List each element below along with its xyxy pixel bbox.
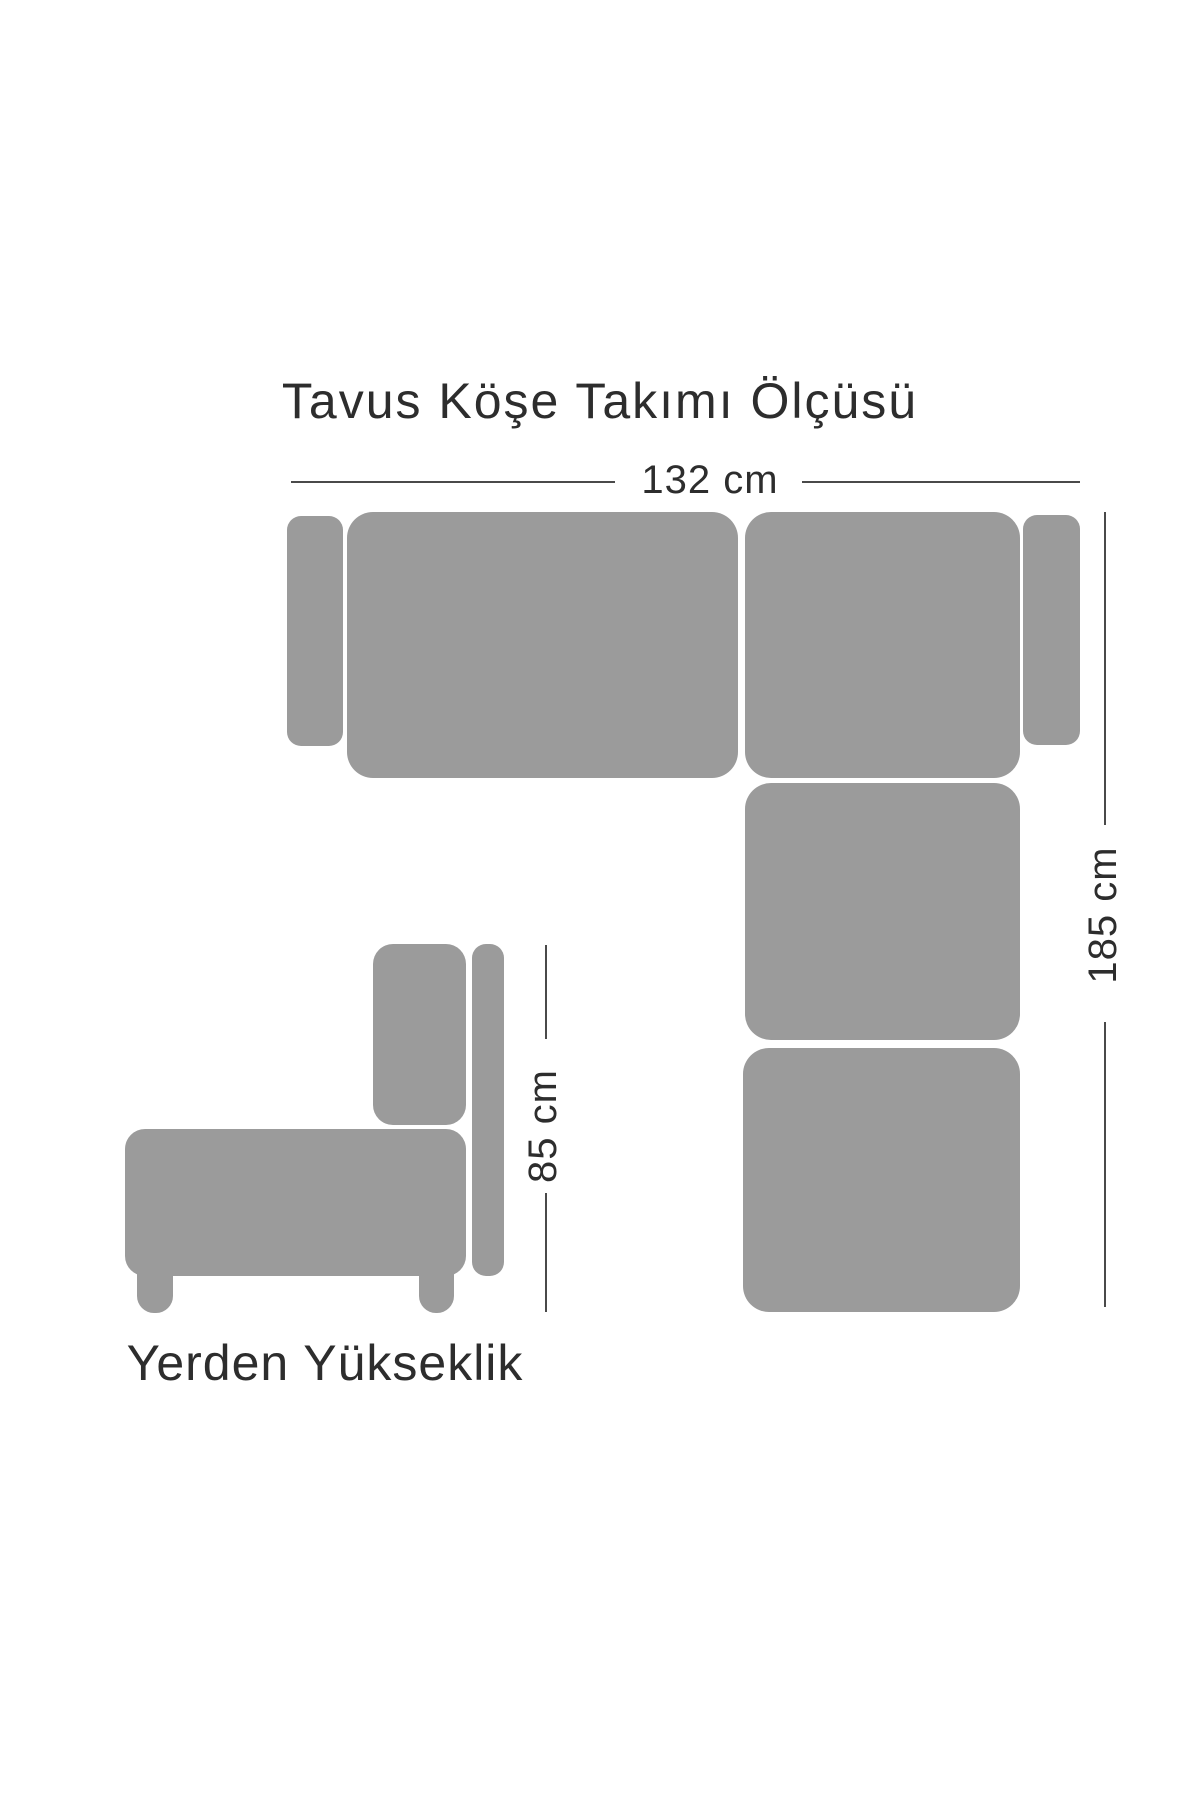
width-dimension-label: 132 cm <box>630 458 790 503</box>
height-dimension-line-top <box>545 945 547 1039</box>
plan-seat-corner <box>745 512 1020 778</box>
plan-armrest-right <box>1023 515 1080 745</box>
height-dimension-label: 85 cm <box>523 1061 563 1191</box>
page-title: Tavus Köşe Takımı Ölçüsü <box>0 372 1200 430</box>
depth-dimension-label: 185 cm <box>1083 830 1123 1000</box>
dimension-diagram: Tavus Köşe Takımı Ölçüsü 132 cm 185 cm 8… <box>0 0 1200 1800</box>
width-dimension-line-left <box>291 481 615 483</box>
depth-dimension-line-top <box>1104 512 1106 825</box>
plan-armrest-left <box>287 516 343 746</box>
plan-seat-middle <box>745 783 1020 1040</box>
side-backrest-bar <box>472 944 504 1276</box>
width-dimension-line-right <box>802 481 1080 483</box>
depth-dimension-line-bottom <box>1104 1022 1106 1307</box>
floor-height-caption: Yerden Yükseklik <box>120 1334 530 1392</box>
side-back-cushion <box>373 944 466 1125</box>
height-dimension-line-bottom <box>545 1193 547 1312</box>
side-leg-left <box>137 1274 173 1313</box>
side-leg-right <box>419 1274 454 1313</box>
plan-seat-main <box>347 512 738 778</box>
side-seat-base <box>125 1129 466 1276</box>
plan-seat-bottom <box>743 1048 1020 1312</box>
